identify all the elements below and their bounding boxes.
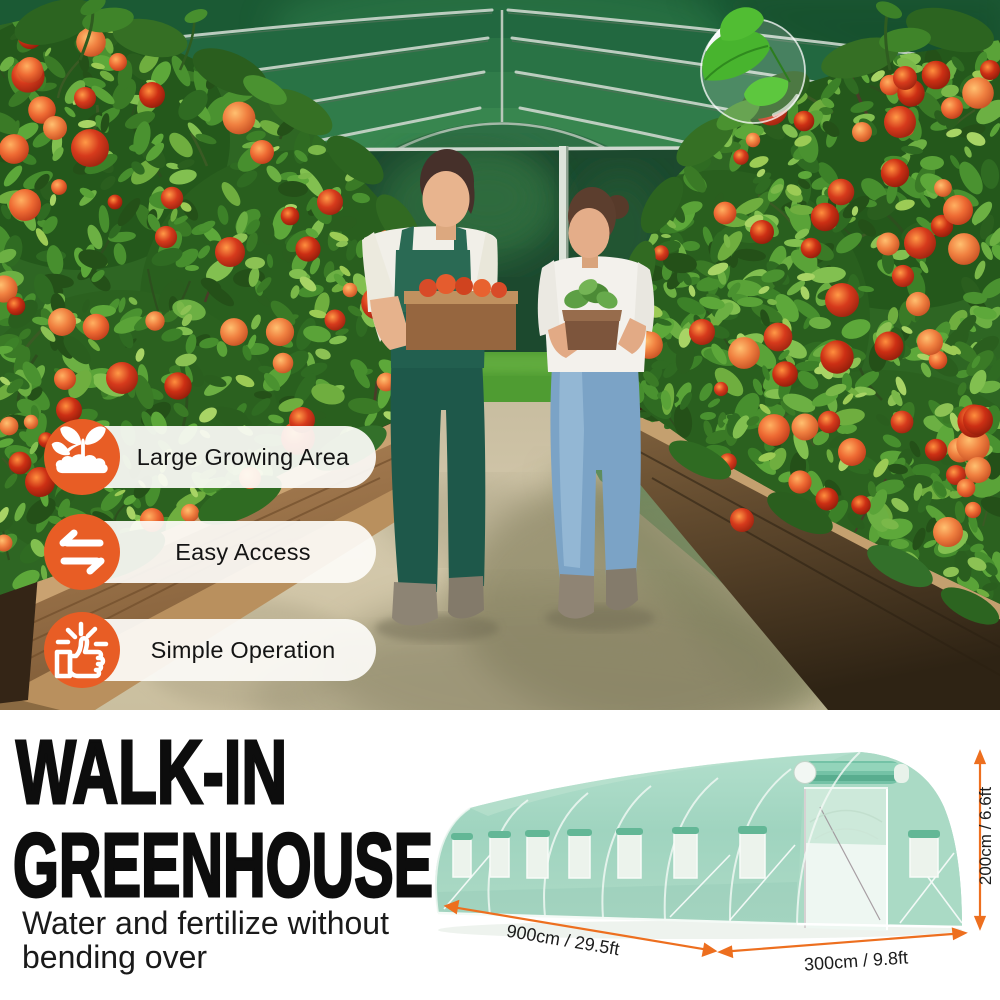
svg-text:300cm / 9.8ft: 300cm / 9.8ft xyxy=(803,947,908,974)
svg-text:200cm / 6.6ft: 200cm / 6.6ft xyxy=(976,787,995,886)
